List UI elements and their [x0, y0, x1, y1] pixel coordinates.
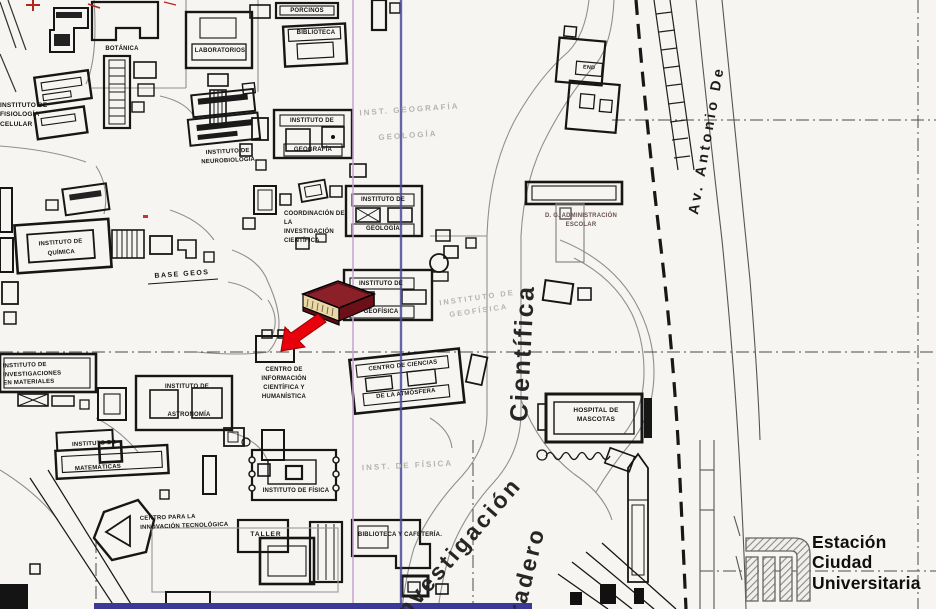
red-arrow-icon[interactable] [281, 314, 326, 351]
label-centro-informacion-cich: CENTRO DE INFORMACIÓN CIENTÍFICA Y HUMAN… [255, 366, 313, 402]
railroad-track [636, 0, 694, 609]
avenue-edges [696, 0, 760, 609]
label-instituto-geografia-bottom: GEOGRAFÍA [284, 146, 342, 155]
label-dg-administracion-escolar: D. G. ADMINISTRACIÓN ESCOLAR [536, 212, 626, 229]
label-instituto-geofisica-top: INSTITUTO DE [350, 280, 412, 289]
label-instituto-geofisica-bottom: GEOFÍSICA [350, 308, 412, 317]
building-laboratorios [186, 12, 252, 124]
label-instituto-quimica: INSTITUTO DE QUÍMICA [31, 237, 90, 260]
label-taller: TALLER [247, 530, 285, 539]
label-instituto-geografia-top: INSTITUTO DE [282, 117, 342, 126]
metro-logo-icon [746, 538, 810, 601]
label-hospital-mascotas: HOSPITAL DE MASCOTAS [554, 406, 638, 425]
building-atmosfera [349, 349, 487, 414]
label-instituto-fisica: INSTITUTO DE FÍSICA [256, 487, 336, 496]
label-laboratorios: LABORATORIOS [192, 47, 248, 56]
label-instituto-geologia-bottom: GEOLOGÍA [354, 225, 412, 234]
label-botanica: BOTÁNICA [96, 45, 148, 54]
label-coordinacion-investigacion: COORDINACIÓN DE LA INVESTIGACIÓN CIENTÍF… [284, 210, 348, 246]
station-name: Estación Ciudad Universitaria [812, 532, 921, 593]
label-instituto-astronomia-top: INSTITUTO DE [156, 383, 218, 392]
label-instituto-fisiologia-celular: INSTITUTO DE FISIOLOGÍA CELULAR [0, 101, 64, 129]
label-instituto-materiales: INSTITUTO DE INVESTIGACIONES EN MATERIAL… [3, 360, 90, 389]
label-biblioteca-cafeteria: BIBLIOTECA Y CAFETERÍA. [354, 531, 446, 540]
campus-map: INSTITUTO DE FISIOLOGÍA CELULAR BOTÁNICA… [0, 0, 936, 609]
label-instituto-geologia-top: INSTITUTO DE [354, 196, 412, 205]
label-biblioteca: BIBLIOTECA [291, 29, 341, 38]
building-neurobiologia [185, 83, 260, 146]
label-porcinos: PORCINOS [281, 7, 333, 16]
station-structures [558, 454, 676, 609]
label-instituto-astronomia-bottom: ASTRONOMÍA [158, 411, 220, 420]
